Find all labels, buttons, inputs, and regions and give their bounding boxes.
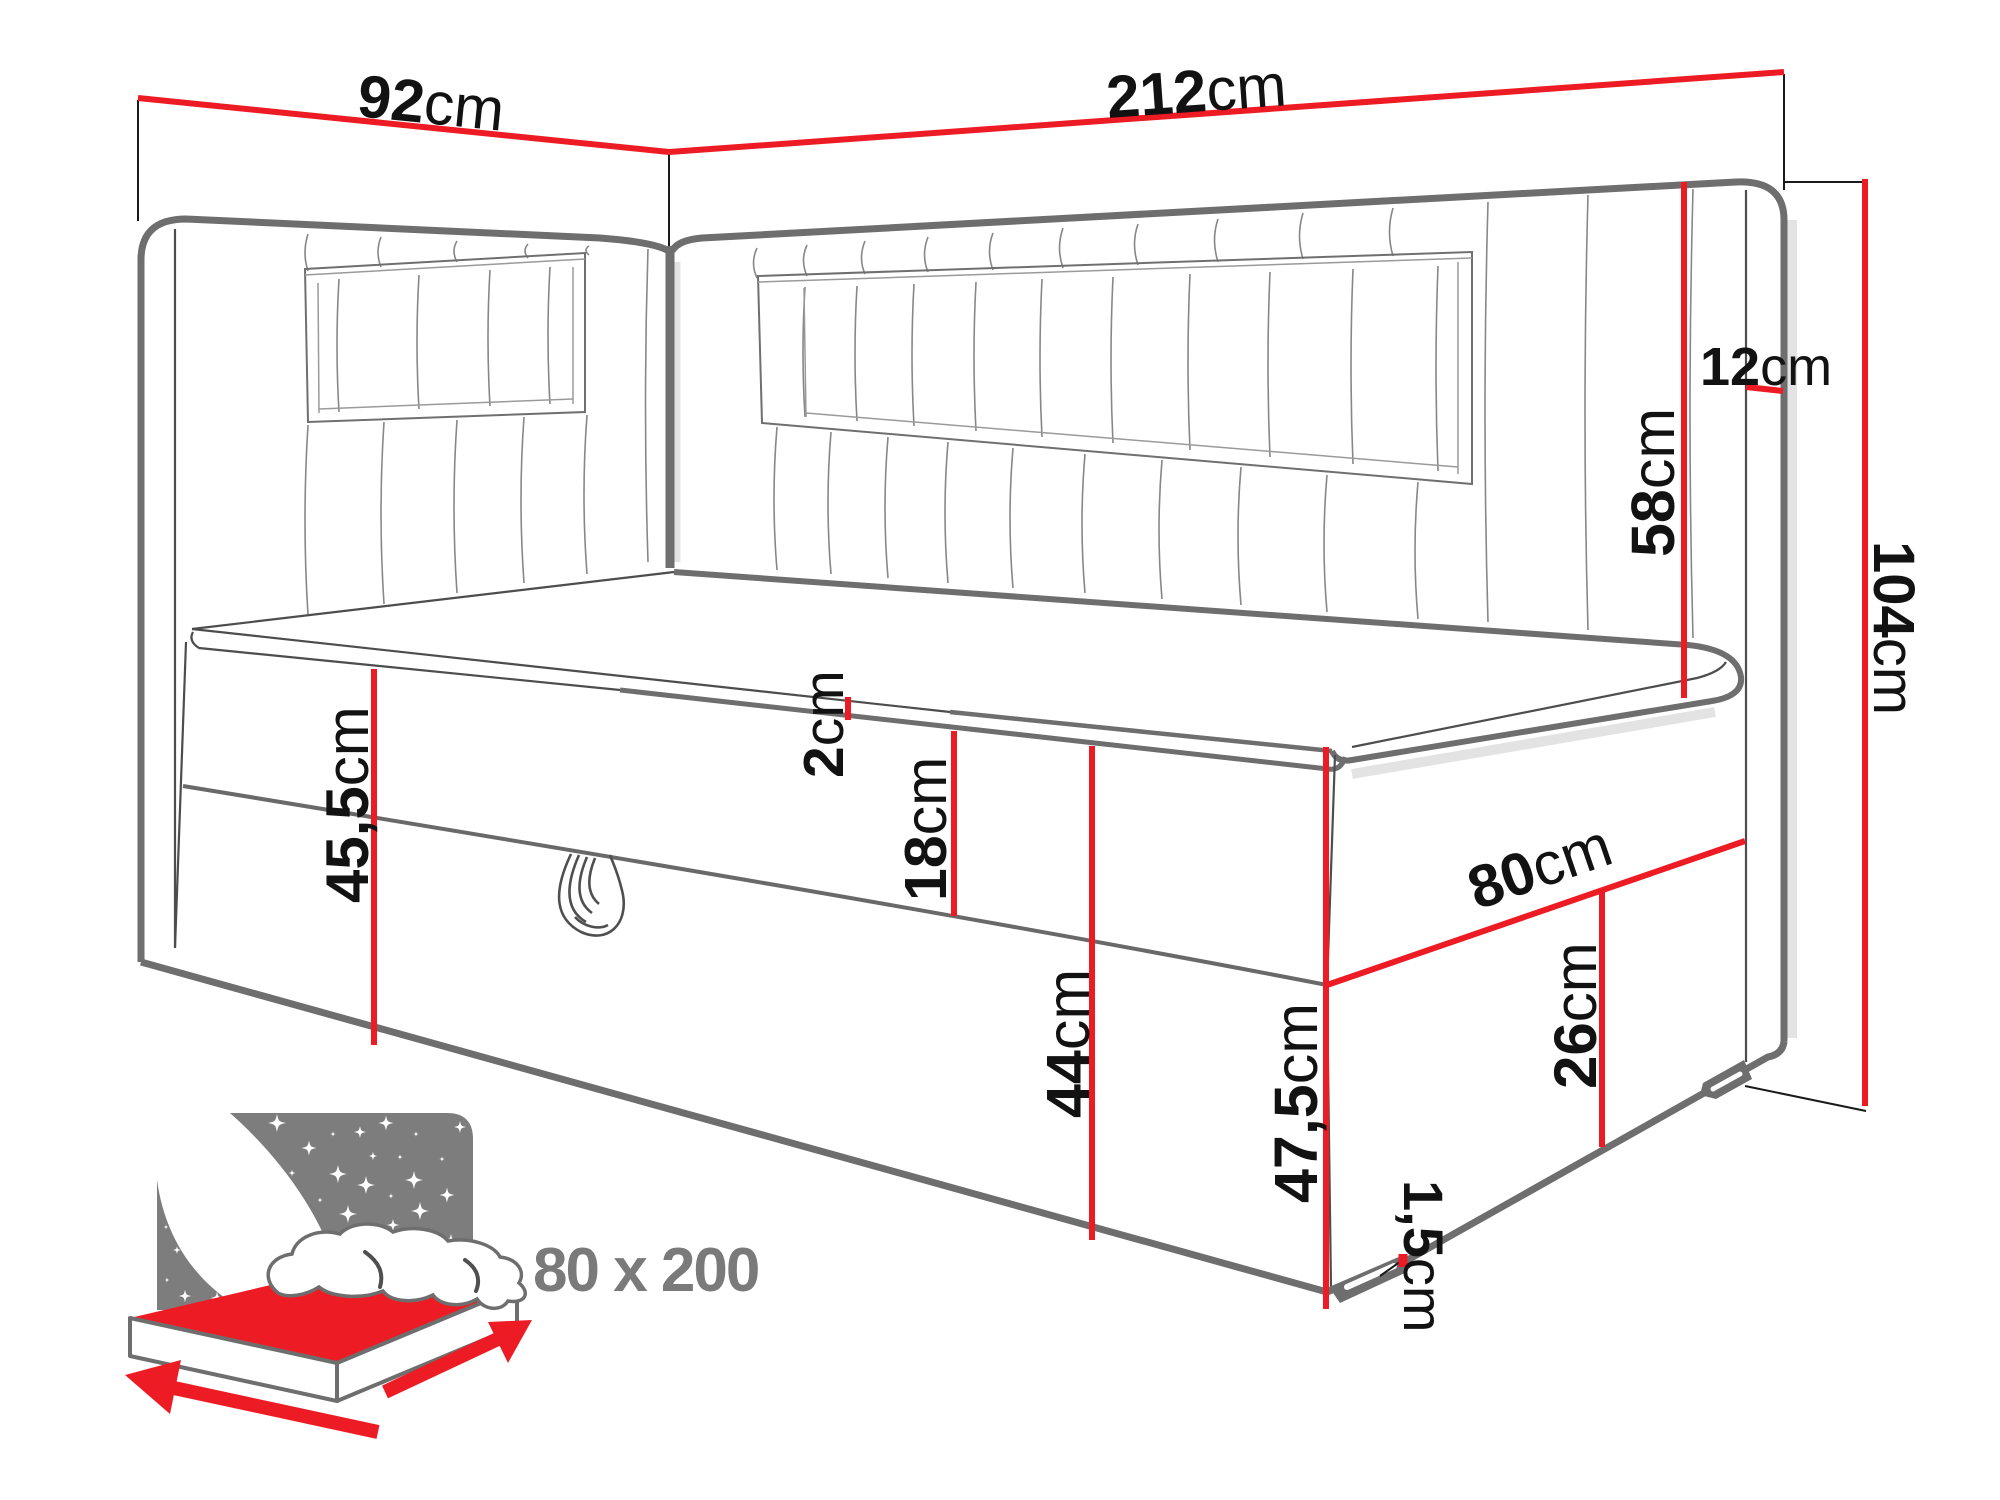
svg-text:1,5cm: 1,5cm: [1392, 1180, 1455, 1333]
svg-text:80 x 200: 80 x 200: [533, 1236, 758, 1305]
svg-text:45,5cm: 45,5cm: [314, 706, 381, 903]
svg-text:26cm: 26cm: [1542, 942, 1609, 1089]
svg-text:18cm: 18cm: [893, 757, 959, 901]
svg-text:80cm: 80cm: [1459, 811, 1620, 922]
svg-text:47,5cm: 47,5cm: [1262, 1003, 1330, 1203]
svg-text:2cm: 2cm: [792, 670, 856, 778]
svg-text:104cm: 104cm: [1861, 541, 1926, 715]
svg-text:212cm: 212cm: [1104, 51, 1288, 131]
svg-text:12cm: 12cm: [1700, 337, 1832, 397]
svg-text:44cm: 44cm: [1034, 969, 1102, 1118]
svg-text:58cm: 58cm: [1619, 408, 1687, 557]
svg-text:92cm: 92cm: [355, 62, 508, 143]
